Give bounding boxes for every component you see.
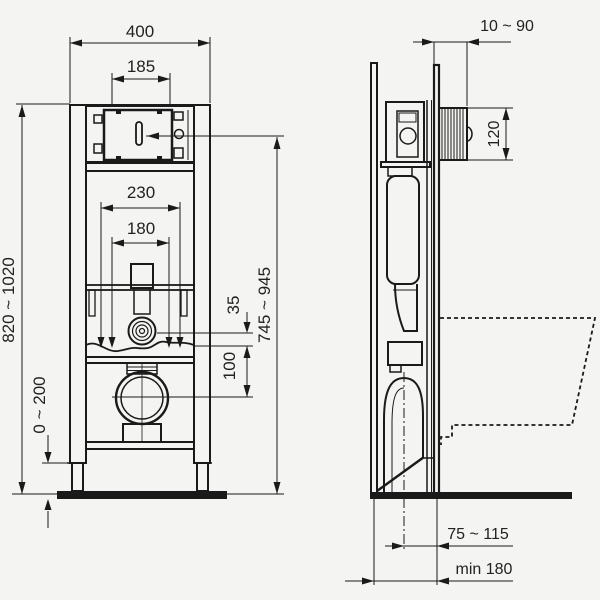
- floor-plate-front: [57, 491, 227, 499]
- dim-label-access-opening: 185: [127, 57, 155, 76]
- wc-bowl-outline: [440, 318, 595, 445]
- floor-plate-side: [370, 492, 572, 499]
- mid-crossbar: [86, 285, 194, 316]
- dim-frame-height: 820 ~ 1020: [0, 104, 70, 494]
- dim-label-lower-fixing: 180: [127, 219, 155, 238]
- dim-upper-fixing-span: 230: [98, 183, 184, 348]
- waste-outlet: [86, 363, 194, 449]
- dim-foot-adjustment: 0 ~ 200: [30, 376, 87, 528]
- technical-drawing: 400 185 230: [0, 0, 600, 600]
- dim-label-upper-fixing: 230: [127, 183, 155, 202]
- drain-bend-side: [377, 372, 433, 552]
- flush-actuator-slot: [136, 122, 142, 145]
- flush-pipe-front: [129, 264, 156, 345]
- dim-wall-finish-depth: 10 ~ 90: [413, 18, 534, 106]
- dim-shaft-height: 120: [468, 108, 513, 160]
- dim-label-wall-finish: 10 ~ 90: [480, 18, 534, 35]
- dim-label-frame-width: 400: [126, 22, 154, 41]
- dim-access-opening-width: 185: [112, 57, 170, 107]
- dim-label-foot-adjustment: 0 ~ 200: [30, 376, 49, 433]
- dim-label-outlet-to-wall: 75 ~ 115: [447, 526, 509, 543]
- access-sleeve: [439, 108, 472, 160]
- cistern-front: [86, 106, 194, 171]
- dim-label-actuator-height: 745 ~ 945: [255, 267, 274, 343]
- dim-actuator-height: 745 ~ 945: [146, 133, 284, 495]
- support-bracket: [86, 342, 194, 374]
- dim-label-outlet-offset: 100: [220, 352, 239, 380]
- dim-label-flush-bend-offset: 35: [224, 296, 243, 315]
- dim-label-min-depth: min 180: [456, 561, 513, 578]
- dim-label-frame-height: 820 ~ 1020: [0, 257, 18, 343]
- side-frame: [371, 63, 439, 494]
- side-view: 10 ~ 90 120 75 ~ 115 min 180: [345, 18, 595, 585]
- dim-min-depth: min 180: [345, 561, 513, 585]
- front-view: 400 185 230: [0, 22, 284, 528]
- wc-frame-drawing: 400 185 230: [0, 0, 600, 600]
- dim-label-shaft-height: 120: [486, 121, 503, 148]
- cistern-side: [381, 102, 430, 372]
- dim-outlet-offset: 100: [112, 346, 253, 397]
